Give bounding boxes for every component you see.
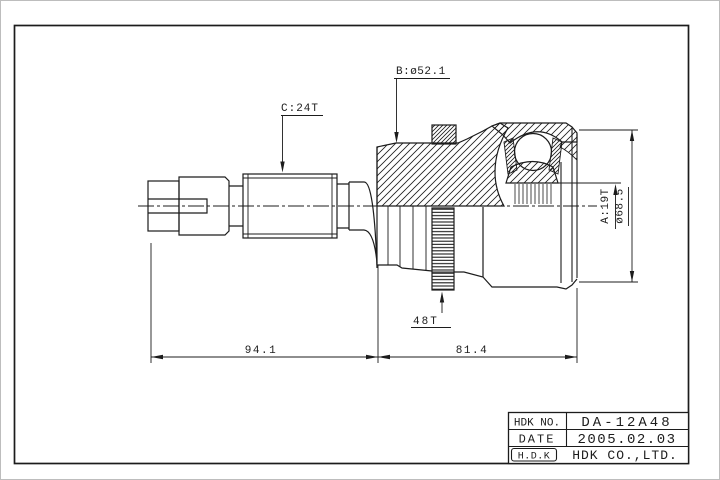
- label-spline-c: C:24T: [281, 103, 319, 115]
- tone-ring-section: [432, 125, 456, 144]
- hdk-logo-text: H.D.K: [518, 452, 551, 463]
- label-joint-length: 81.4: [456, 345, 488, 357]
- page-edge: [1, 1, 720, 480]
- label-tone-ring: 48T: [413, 316, 439, 328]
- title-date-value: 2005.02.03: [577, 432, 676, 448]
- label-spline-a: A:19T: [600, 188, 612, 224]
- label-shaft-length: 94.1: [245, 345, 277, 357]
- cv-joint-drawing: B:ø52.1 C:24T 48T A:19T ø68.5 94.1 81.4 …: [0, 0, 720, 480]
- label-outer-diameter: ø68.5: [615, 188, 627, 224]
- drawing-sheet: B:ø52.1 C:24T 48T A:19T ø68.5 94.1 81.4 …: [0, 0, 720, 480]
- label-spline-b: B:ø52.1: [396, 66, 446, 78]
- title-no-value: DA-12A48: [581, 415, 672, 431]
- title-block: HDK NO. DA-12A48 DATE 2005.02.03 H.D.K H…: [509, 413, 689, 464]
- title-date-label: DATE: [519, 433, 556, 447]
- tone-ring-teeth: [432, 208, 454, 290]
- title-no-label: HDK NO.: [514, 418, 560, 430]
- title-company: HDK CO.,LTD.: [572, 448, 678, 463]
